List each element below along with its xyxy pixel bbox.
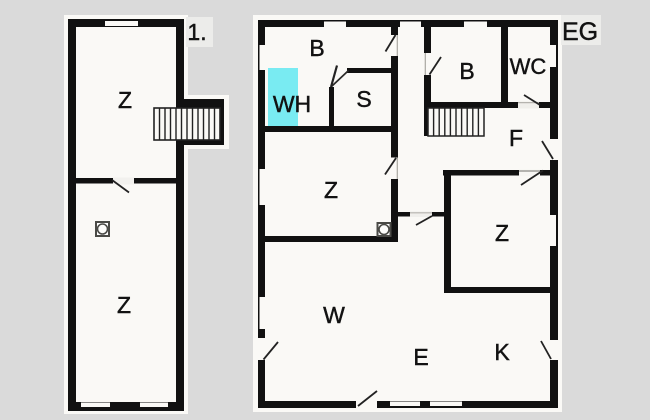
svg-text:F: F (509, 125, 523, 151)
svg-text:E: E (413, 344, 428, 370)
svg-text:WH: WH (273, 91, 311, 117)
svg-text:K: K (494, 339, 510, 365)
svg-text:WC: WC (510, 54, 547, 79)
svg-text:W: W (323, 302, 345, 328)
svg-text:S: S (356, 86, 371, 112)
svg-text:B: B (459, 58, 474, 84)
svg-text:Z: Z (495, 220, 509, 246)
svg-text:EG: EG (562, 18, 598, 46)
svg-text:1.: 1. (187, 19, 206, 45)
svg-text:Z: Z (324, 177, 338, 203)
svg-text:Z: Z (117, 292, 131, 318)
svg-text:Z: Z (118, 87, 132, 113)
svg-text:B: B (309, 35, 324, 61)
